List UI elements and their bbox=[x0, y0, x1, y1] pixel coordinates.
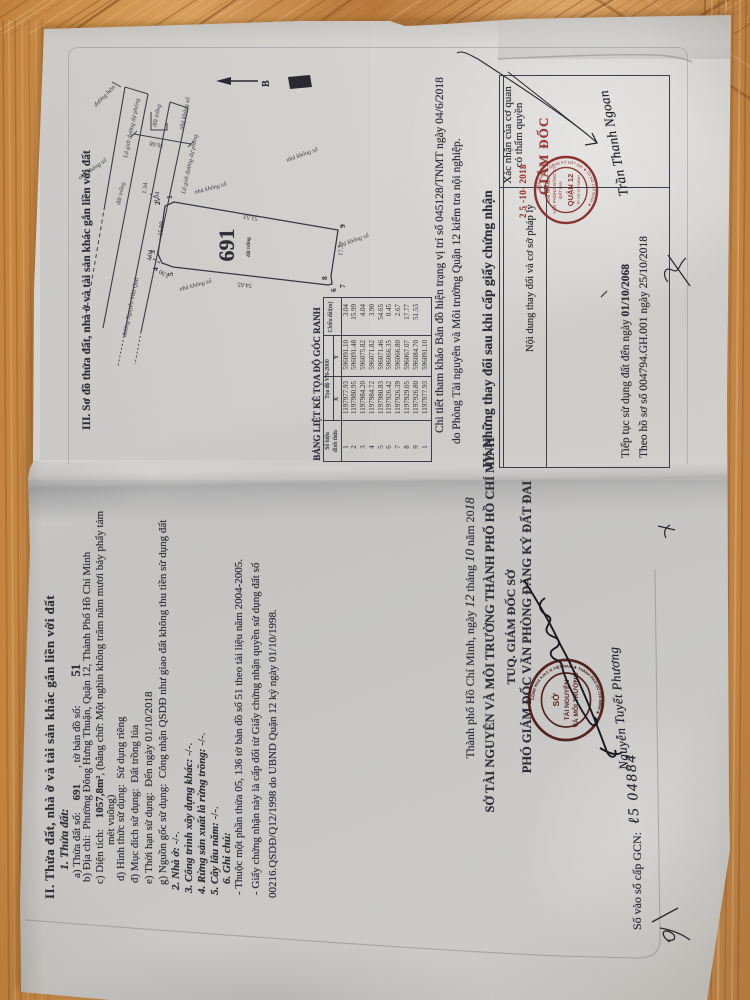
svg-text:8: 8 bbox=[320, 276, 329, 280]
svg-text:ĐẤT ĐAI: ĐẤT ĐAI bbox=[558, 181, 563, 198]
svg-text:3: 3 bbox=[148, 250, 157, 254]
svg-text:5: 5 bbox=[166, 272, 175, 276]
svg-text:15.99: 15.99 bbox=[157, 221, 166, 236]
svg-text:nhà không số: nhà không số bbox=[285, 146, 319, 164]
svg-text:54.65: 54.65 bbox=[237, 281, 252, 289]
svg-text:SỞ: SỞ bbox=[550, 693, 561, 707]
svg-text:Lộ giới đường dự phóng: Lộ giới đường dự phóng bbox=[180, 134, 200, 196]
svg-text:QUẬN 12: QUẬN 12 bbox=[566, 174, 575, 207]
svg-text:nhà không số: nhà không số bbox=[77, 156, 109, 181]
svg-text:2: 2 bbox=[153, 201, 162, 205]
svg-text:nhà không số: nhà không số bbox=[194, 180, 229, 196]
svg-text:đường Nguyễn Văn Quá: đường Nguyễn Văn Quá bbox=[121, 277, 140, 337]
svg-text:CHI NHÁNH: CHI NHÁNH bbox=[546, 178, 551, 202]
svg-text:TP HỒ CHÍ MINH: TP HỒ CHÍ MINH bbox=[576, 175, 581, 205]
svg-text:17.77: 17.77 bbox=[337, 240, 346, 256]
svg-text:1.34: 1.34 bbox=[141, 181, 149, 194]
svg-text:9: 9 bbox=[338, 224, 347, 228]
svg-text:51.53: 51.53 bbox=[243, 213, 258, 222]
svg-text:VĂN PHÒNG ĐĂNG KÝ: VĂN PHÒNG ĐĂNG KÝ bbox=[552, 166, 557, 213]
svg-text:4: 4 bbox=[151, 267, 160, 271]
svg-text:đất trống: đất trống bbox=[115, 182, 127, 206]
svg-text:1: 1 bbox=[165, 195, 174, 199]
svg-text:nhà không số: nhà không số bbox=[179, 277, 214, 293]
svg-text:Lộ giới đường dự phóng: Lộ giới đường dự phóng bbox=[122, 98, 142, 160]
svg-text:đường hẻm: đường hẻm bbox=[92, 83, 117, 108]
svg-text:7: 7 bbox=[338, 284, 347, 288]
svg-text:6: 6 bbox=[329, 288, 338, 292]
svg-text:đất trống: đất trống bbox=[151, 104, 163, 128]
svg-text:nhà không số: nhà không số bbox=[178, 96, 192, 131]
